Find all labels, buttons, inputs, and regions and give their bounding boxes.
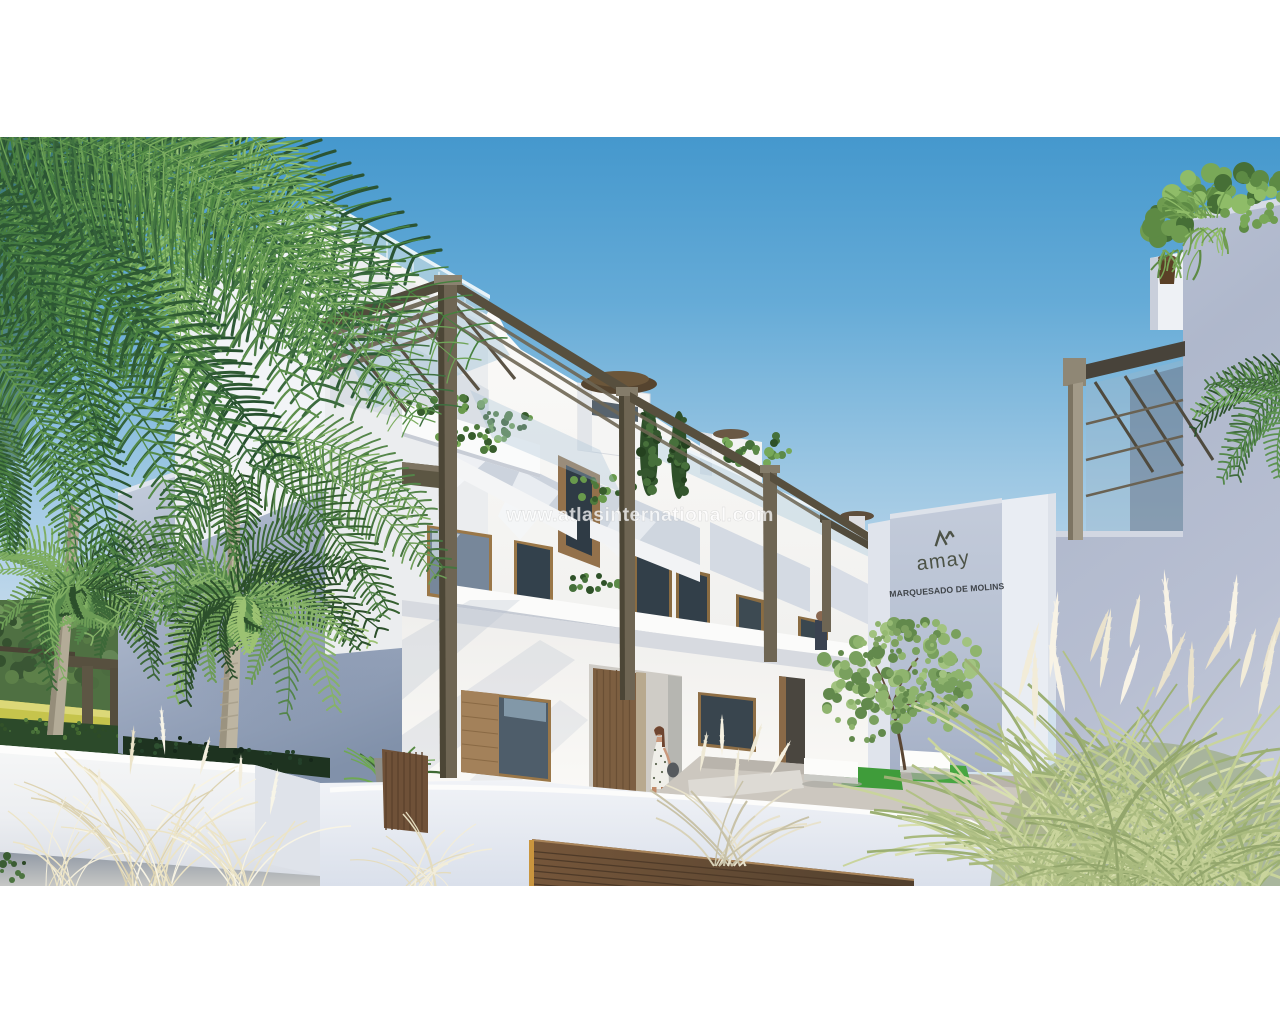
svg-text:www.atlasinternational.com: www.atlasinternational.com	[505, 504, 774, 526]
